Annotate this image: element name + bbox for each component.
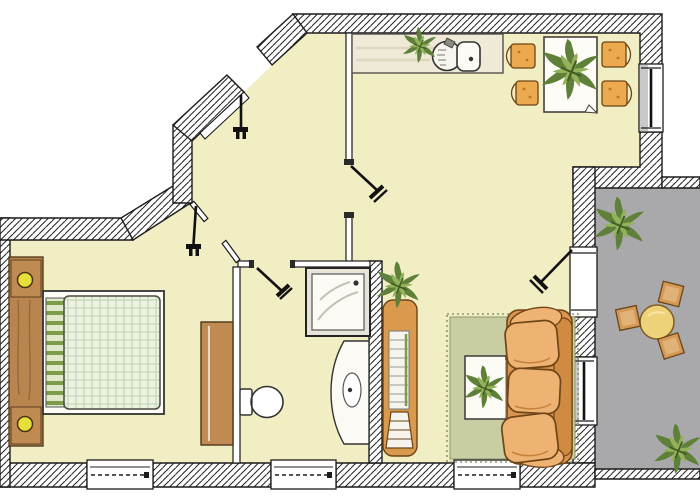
balcony-stool bbox=[658, 281, 683, 306]
wall-living-balcony-1 bbox=[573, 167, 595, 248]
toilet bbox=[240, 387, 283, 418]
headboard-with-lamps bbox=[9, 257, 43, 446]
kitchen-counter bbox=[352, 27, 503, 73]
wall-top-left bbox=[0, 218, 133, 240]
bathroom-window bbox=[271, 460, 336, 489]
dining-chair bbox=[507, 44, 536, 68]
dining-chair bbox=[512, 81, 539, 105]
balcony-stool bbox=[616, 306, 641, 331]
bed-duvet bbox=[64, 296, 160, 409]
floor-plan-canvas bbox=[0, 0, 700, 500]
double-bed bbox=[43, 291, 164, 414]
bedside-lamp bbox=[18, 273, 33, 288]
wall-hall-living-lower bbox=[346, 217, 352, 262]
dining-french-window bbox=[639, 64, 663, 132]
basin-drain bbox=[348, 388, 352, 392]
living-window bbox=[454, 460, 520, 489]
washbasin-vanity bbox=[331, 341, 369, 444]
balcony-parapet bbox=[595, 469, 700, 479]
balcony-table bbox=[640, 305, 674, 339]
bed-blanket bbox=[46, 298, 64, 407]
sink-basin bbox=[457, 42, 480, 71]
wall-hall-living bbox=[346, 33, 352, 161]
wardrobe bbox=[201, 322, 233, 445]
wall-bottom-3 bbox=[336, 463, 454, 487]
wall-living-balcony-3 bbox=[573, 423, 595, 463]
bedside-lamp bbox=[18, 417, 33, 432]
sofa-cushion bbox=[507, 368, 561, 415]
bedroom-window bbox=[87, 460, 153, 489]
wall-balcony-top bbox=[662, 177, 700, 188]
shower-drain bbox=[353, 280, 358, 285]
balcony-door-frame bbox=[570, 247, 597, 317]
dining-chair bbox=[602, 81, 632, 106]
sofa bbox=[500, 304, 572, 470]
wall-living-balcony-2 bbox=[573, 316, 595, 357]
shower bbox=[306, 268, 370, 336]
wall-bottom-1 bbox=[0, 463, 87, 487]
wall-bath-top-b bbox=[291, 261, 370, 267]
wall-bed-bath bbox=[233, 267, 240, 463]
floor-plan bbox=[0, 0, 700, 500]
coffee-table bbox=[465, 356, 506, 419]
dining-chair bbox=[602, 42, 631, 67]
wall-bottom-2 bbox=[153, 463, 271, 487]
